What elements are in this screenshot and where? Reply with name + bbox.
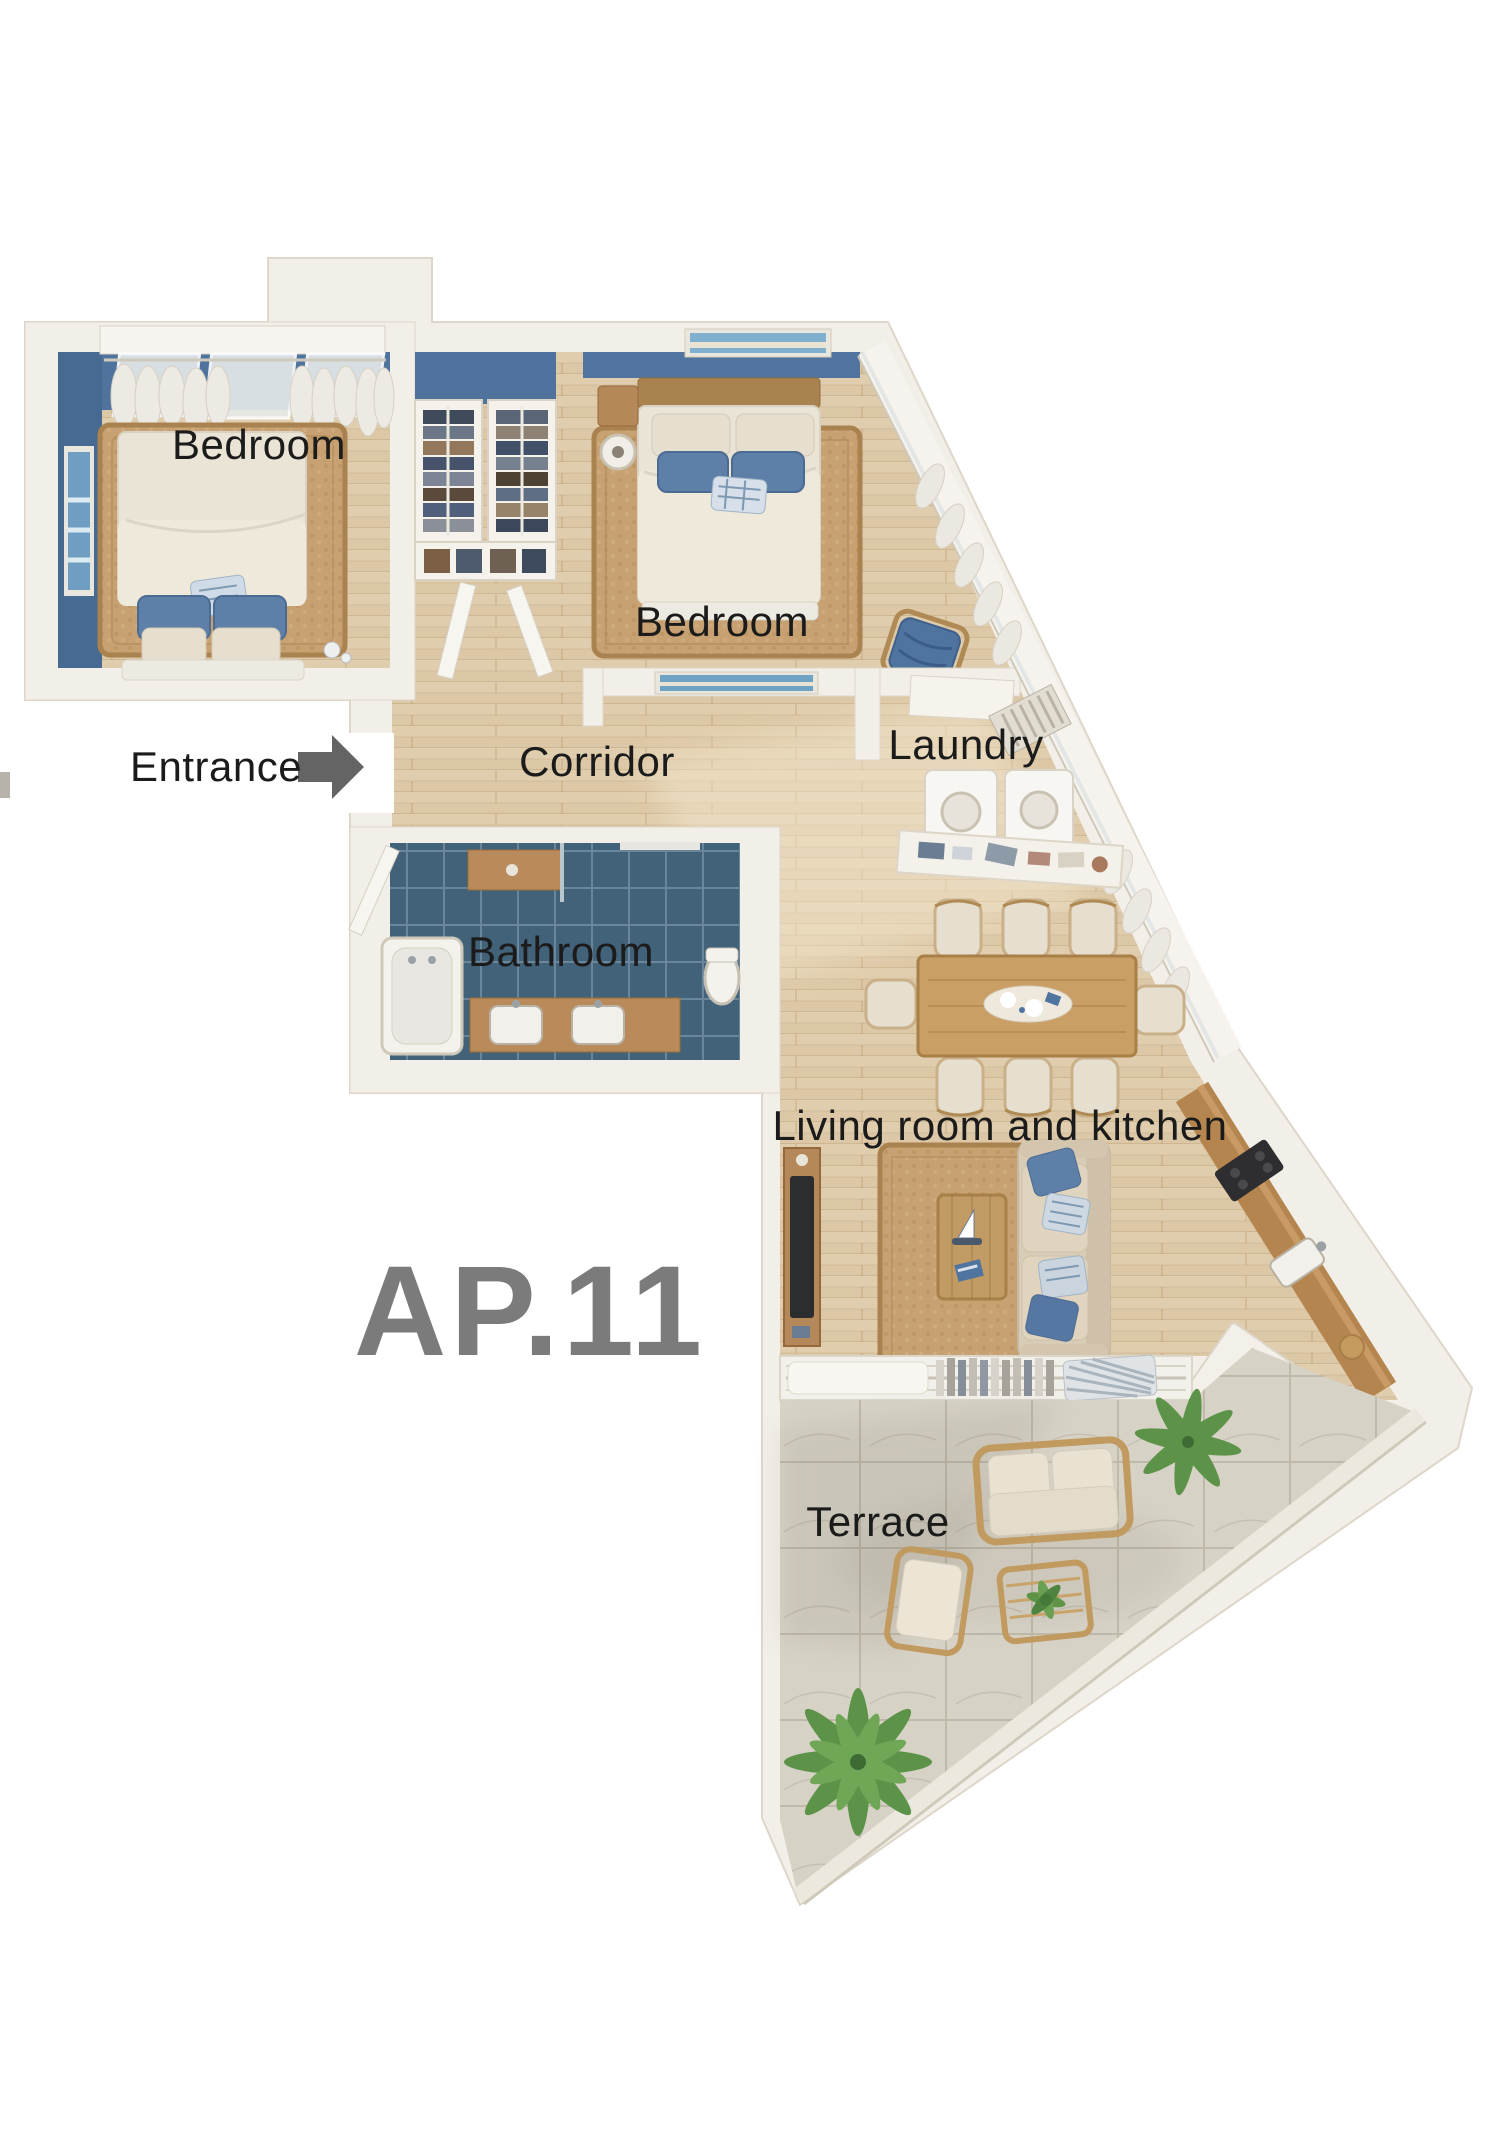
entrance (298, 733, 394, 813)
book-stack (936, 1358, 1054, 1396)
wall-stub-laundry (855, 668, 880, 760)
bedroom-left-window (100, 326, 394, 436)
bench-cushion (788, 1362, 928, 1394)
room-label-bedroom-right: Bedroom (635, 601, 809, 643)
room-label-corridor: Corridor (519, 741, 675, 783)
wardrobe-blue-wall (415, 352, 556, 404)
bedroom-left (25, 322, 415, 700)
wall-art-seascape-top (685, 329, 831, 357)
wardrobe-base-cabinet (415, 542, 556, 580)
wall-art-seascape-left (64, 446, 94, 596)
room-label-bedroom-left: Bedroom (172, 424, 346, 466)
bedroom-right-bed (638, 378, 820, 620)
palm-plant-large (784, 1688, 932, 1836)
floor-plan-page: Bedroom Bedroom Entrance Corridor Laundr… (0, 0, 1500, 2139)
neighbor-wall-fragment (0, 772, 10, 798)
floor-plan-graphic (0, 0, 1500, 2139)
bedroom-left-bed (118, 432, 306, 680)
terrace (780, 1348, 1426, 1904)
kitchen-jar (1340, 1335, 1364, 1359)
dining-table (918, 956, 1136, 1056)
wardrobe-right (488, 400, 556, 542)
wall-art-seascape-corridor (655, 672, 818, 694)
cushion-stack (1063, 1355, 1158, 1401)
sofa (1018, 1140, 1110, 1362)
room-label-bathroom: Bathroom (468, 931, 654, 973)
bathroom-vanity (470, 998, 680, 1052)
room-label-laundry: Laundry (888, 724, 1043, 766)
room-label-terrace: Terrace (806, 1501, 950, 1543)
bathtub (382, 938, 462, 1054)
wardrobe-left (415, 400, 482, 542)
tv-console (784, 1148, 820, 1346)
toilet (705, 948, 739, 1004)
coffee-table (938, 1195, 1006, 1299)
wall-stub-left (583, 668, 603, 726)
room-label-living-kitchen: Living room and kitchen (772, 1105, 1227, 1147)
sliding-door-band (780, 1355, 1192, 1401)
room-label-entrance: Entrance (130, 746, 302, 788)
apartment-id: AP.11 (354, 1248, 706, 1376)
